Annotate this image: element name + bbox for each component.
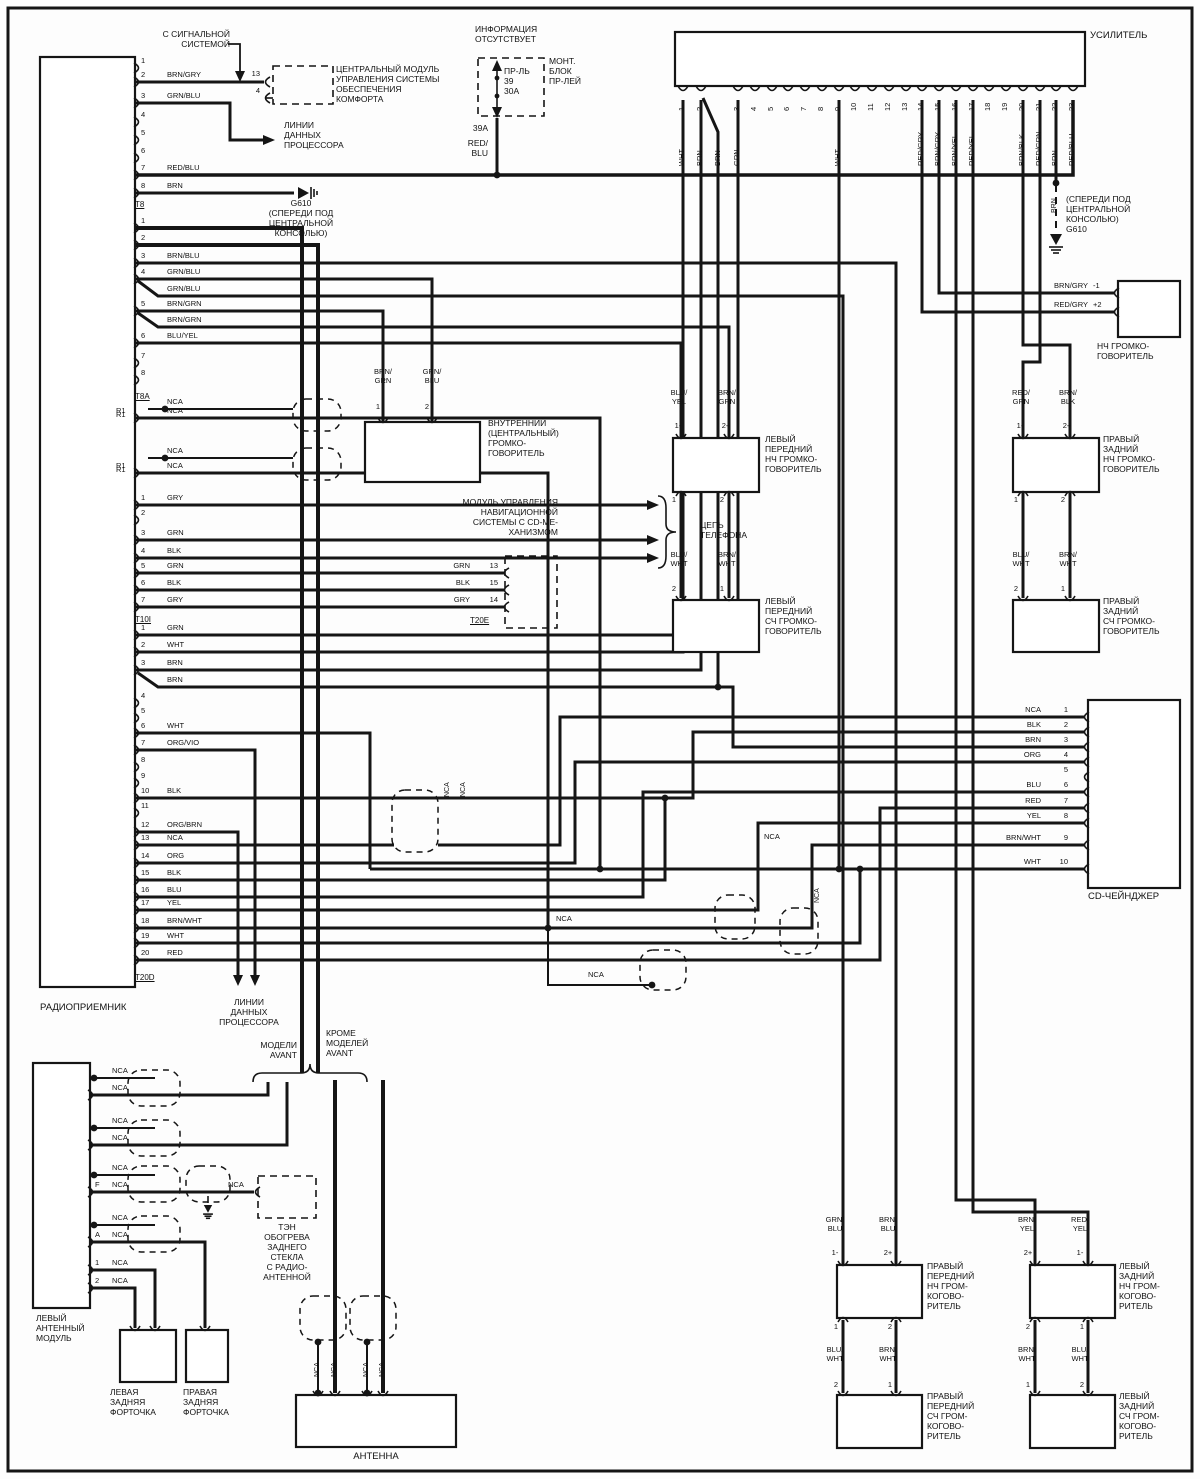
wire-color-label: NCA — [167, 407, 183, 416]
fuse-dot — [495, 94, 500, 99]
connector-tag: T10I — [135, 615, 151, 624]
wire — [135, 808, 1085, 960]
annotation: NCA — [379, 1362, 386, 1377]
annotation: BRN/ BLK — [1051, 389, 1085, 407]
annotation: NCA — [331, 1362, 338, 1377]
center-speaker-box — [365, 422, 480, 482]
pin-number: 11 — [867, 103, 875, 111]
wire-color-label: BRN — [953, 736, 1041, 745]
arrow-icon — [647, 535, 659, 545]
pin-number: 7 — [800, 107, 808, 111]
pin-number: 7 — [141, 164, 145, 173]
annotation: ЛЕВЫЙ ЗАДНИЙ НЧ ГРОМ- КОГОВО- РИТЕЛЬ — [1119, 1261, 1160, 1311]
pin-number: 11 — [141, 802, 149, 811]
wire-color-label: NCA — [112, 1231, 128, 1240]
annotation: GRY — [430, 596, 470, 605]
annotation: АНТЕННА — [316, 1451, 436, 1462]
wire-color-label: BRN/GRN — [167, 300, 202, 309]
annotation: R1 — [116, 466, 126, 475]
wire-color-label: NCA — [167, 462, 183, 471]
annotation: NCA — [228, 1181, 244, 1190]
wire-color-label: BRN/GRY — [167, 71, 201, 80]
pin-number: 1 — [95, 1259, 99, 1268]
wire-color-label: RED/BLU — [167, 164, 200, 173]
wire-color-label: RED/GRN — [1035, 131, 1043, 166]
brace — [253, 1064, 367, 1082]
arrow-icon — [263, 135, 275, 145]
annotation: BLU/ YEL — [662, 389, 696, 407]
annotation: GRN/ BLU — [818, 1216, 852, 1234]
wiring-diagram-page: 12BRN/GRY3GRN/BLU4567RED/BLU8BRN123BRN/B… — [0, 0, 1200, 1479]
lf-mid-box — [673, 600, 759, 652]
wire — [135, 103, 264, 140]
wire — [135, 732, 1085, 798]
pin-number: 1 — [141, 494, 145, 503]
annotation: 13 — [240, 70, 260, 79]
wire-color-label: RED/YEL — [968, 134, 976, 166]
arrow-icon — [492, 60, 502, 71]
wire-color-label: NCA — [112, 1067, 128, 1076]
annotation: NCA — [460, 782, 467, 797]
wire-color-label: WHT — [167, 641, 184, 650]
annotation: RED/ GRN — [1004, 389, 1038, 407]
wire-color-label: BLK — [167, 869, 181, 878]
annotation: BRN/ WHT — [1010, 1346, 1044, 1364]
annotation: ПРАВЫЙ ПЕРЕДНИЙ НЧ ГРОМ- КОГОВО- РИТЕЛЬ — [927, 1261, 974, 1311]
annotation: 39А — [452, 123, 488, 133]
pin-number: 12 — [884, 103, 892, 111]
annotation: BRN/ WHT — [1051, 551, 1085, 569]
annotation: 2+ — [1018, 1249, 1038, 1258]
pin-number: 13 — [901, 103, 909, 111]
wire-color-label: ORG/VIO — [167, 739, 199, 748]
wire-color-label: BLU — [167, 886, 182, 895]
annotation: НЧ ГРОМКО- ГОВОРИТЕЛЬ — [1097, 341, 1154, 361]
wire-color-label: WHT — [167, 932, 184, 941]
wire-color-label: BRN/BLK — [1018, 134, 1026, 166]
antenna-module-box — [33, 1063, 90, 1308]
wire — [135, 418, 600, 869]
ground-icon — [204, 1205, 212, 1213]
annotation: 4 — [240, 87, 260, 96]
annotation: 1 — [1018, 1381, 1038, 1390]
subwoofer-box — [1118, 281, 1180, 337]
defogger-box — [258, 1176, 316, 1218]
arrow-icon — [647, 553, 659, 563]
annotation: BRN/ YEL — [1010, 1216, 1044, 1234]
annotation: 1 — [368, 403, 388, 412]
wire-color-label: GRN/BLU — [167, 92, 200, 101]
annotation: 2+ — [878, 1249, 898, 1258]
junction-dot — [649, 982, 656, 989]
pin-number: 14 — [141, 852, 149, 861]
wire — [135, 832, 238, 976]
pin-number: 8 — [141, 756, 145, 765]
annotation: 2 — [1018, 1323, 1038, 1332]
annotation: BLU/ WHT — [818, 1346, 852, 1364]
arrow-icon — [647, 500, 659, 510]
wire-color-label: BRN — [167, 676, 183, 685]
annotation: 2 — [712, 496, 732, 505]
pin-number: 21 — [1035, 103, 1043, 111]
connector-arc — [266, 77, 271, 87]
shield-symbol — [715, 895, 755, 939]
connector-tag: T8 — [135, 200, 144, 209]
wire-color-label: BRN/GRN — [167, 316, 202, 325]
wire-color-label: BRN — [714, 150, 722, 166]
wire-color-label: NCA — [112, 1259, 128, 1268]
wire-color-label: NCA — [167, 447, 183, 456]
junction-dot — [1053, 180, 1060, 187]
pin-number: 9 — [141, 772, 145, 781]
annotation: 14 — [478, 596, 498, 605]
annotation: ЛИНИИ ДАННЫХ ПРОЦЕССОРА — [284, 120, 344, 150]
annotation: 1- — [1070, 1249, 1090, 1258]
annotation: ЛЕВЫЙ АНТЕННЫЙ МОДУЛЬ — [36, 1313, 85, 1343]
annotation: УСИЛИТЕЛЬ — [1090, 30, 1147, 41]
wire-color-label: BRN/GRY — [934, 132, 942, 166]
wire-color-label: YEL — [953, 812, 1041, 821]
pin-number: 6 — [783, 107, 791, 111]
annotation: NCA — [814, 888, 821, 903]
pin-number: 4 — [141, 111, 145, 120]
wire — [135, 845, 1085, 928]
wire-color-label: NCA — [112, 1214, 128, 1223]
wire-color-label: ORG — [953, 751, 1041, 760]
annotation: ЛЕВАЯ ЗАДНЯЯ ФОРТОЧКА — [110, 1387, 156, 1417]
annotation: 1- — [668, 422, 688, 431]
connector-tag: T20D — [135, 973, 155, 982]
annotation: ПРАВЫЙ ЗАДНИЙ НЧ ГРОМКО- ГОВОРИТЕЛЬ — [1103, 434, 1160, 474]
pin-number: 23 — [1068, 103, 1076, 111]
annotation: МОДУЛЬ УПРАВЛЕНИЯ НАВИГАЦИОННОЙ СИСТЕМЫ … — [420, 497, 558, 537]
junction-dot — [315, 1390, 322, 1397]
annotation: 15 — [478, 579, 498, 588]
pin-number: 19 — [141, 932, 149, 941]
lf-woofer-box — [673, 438, 759, 492]
pin-number: 2 — [141, 509, 145, 518]
annotation: NCA — [764, 833, 780, 842]
wire-color-label: NCA — [112, 1277, 128, 1286]
wire-color-label: ORG/BRN — [167, 821, 202, 830]
annotation: 2 — [826, 1381, 846, 1390]
wire-color-label: BRN/YEL — [951, 134, 959, 166]
annotation: 1 — [1053, 585, 1073, 594]
pin-number: 17 — [968, 103, 976, 111]
annotation: BRN/ GRN — [710, 389, 744, 407]
connector-tag: T20E — [470, 616, 489, 625]
junction-dot — [91, 1172, 98, 1179]
annotation: BRN/ WHT — [710, 551, 744, 569]
junction-dot — [545, 925, 552, 932]
amplifier-box — [675, 32, 1085, 86]
pin-number: 8 — [141, 182, 145, 191]
pin-number: 16 — [951, 103, 959, 111]
pin-number: 5 — [141, 562, 145, 571]
annotation: RED/GRY — [1040, 301, 1088, 310]
wire-color-label: GRN — [167, 562, 184, 571]
annotation: 1 — [1072, 1323, 1092, 1332]
pin-number: 4 — [750, 107, 758, 111]
pin-number: 16 — [141, 886, 149, 895]
pin-number: 3 — [141, 529, 145, 538]
annotation: BRN/ GRN — [366, 368, 400, 386]
pin-number: 5 — [767, 107, 775, 111]
annotation: 1 — [1006, 496, 1026, 505]
junction-dot — [494, 172, 501, 179]
pin-number: 8 — [141, 369, 145, 378]
wire-color-label: BLK — [167, 579, 181, 588]
annotation: ЛИНИИ ДАННЫХ ПРОЦЕССОРА — [203, 997, 295, 1027]
annotation: 1- — [1010, 422, 1030, 431]
annotation: BLK — [430, 579, 470, 588]
pin-number: 10 — [1046, 858, 1068, 867]
wire-color-label: NCA — [112, 1134, 128, 1143]
pin-number: 5 — [141, 707, 145, 716]
wire — [135, 245, 318, 1073]
wire-color-label: WHT — [953, 858, 1041, 867]
wire-color-label: NCA — [112, 1164, 128, 1173]
pin-number: 9 — [834, 107, 842, 111]
junction-dot — [91, 1125, 98, 1132]
rf-mid-box — [837, 1395, 922, 1448]
connector-tag: T8A — [135, 392, 150, 401]
annotation: ТЭН ОБОГРЕВА ЗАДНЕГО СТЕКЛА С РАДИО- АНТ… — [240, 1222, 334, 1282]
comfort-module-box — [273, 66, 333, 104]
pin-number: 20 — [141, 949, 149, 958]
annotation: 13 — [478, 562, 498, 571]
junction-dot — [662, 795, 669, 802]
pin-number: 14 — [917, 103, 925, 111]
fuse-dot — [495, 76, 500, 81]
wire-color-label: NCA — [167, 834, 183, 843]
wire-color-label: YEL — [167, 899, 181, 908]
annotation: ИНФОРМАЦИЯ ОТСУТСТВУЕТ — [475, 24, 537, 44]
annotation: 2 — [1053, 496, 1073, 505]
wire-color-label: BLK — [167, 787, 181, 796]
pin-number: 4 — [141, 547, 145, 556]
annotation: ЛЕВЫЙ ЗАДНИЙ СЧ ГРОМ- КОГОВО- РИТЕЛЬ — [1119, 1391, 1160, 1441]
annotation: 1 — [826, 1323, 846, 1332]
annotation: МОДЕЛИ AVANT — [225, 1040, 297, 1060]
wire-color-label: WHT — [678, 149, 686, 166]
rr-mid-box — [1013, 600, 1099, 652]
wire-color-label: BRN — [167, 659, 183, 668]
annotation: 2+ — [1057, 422, 1077, 431]
annotation: -1 — [1093, 282, 1100, 291]
wire — [90, 1288, 135, 1328]
annotation: 1- — [825, 1249, 845, 1258]
wire-color-label: BRN — [1051, 150, 1059, 166]
annotation: ЦЕПЬ ТЕЛЕФОНА — [700, 520, 747, 540]
annotation: (СПЕРЕДИ ПОД ЦЕНТРАЛЬНОЙ КОНСОЛЬЮ) G610 — [1066, 194, 1131, 234]
pin-number: 3 — [1046, 736, 1068, 745]
wire-color-label: ORG — [167, 852, 184, 861]
cd-changer-box — [1088, 700, 1180, 888]
pin-number: 7 — [1046, 797, 1068, 806]
lr-mid-box — [1030, 1395, 1115, 1448]
annotation: 2 — [664, 585, 684, 594]
pin-number: 3 — [733, 107, 741, 111]
annotation: R1 — [116, 411, 126, 420]
arrow-icon — [250, 975, 260, 986]
junction-dot — [364, 1339, 371, 1346]
radio-box — [40, 57, 135, 987]
wire-color-label: NCA — [953, 706, 1041, 715]
annotation: GRN/ BLU — [415, 368, 449, 386]
wire — [135, 263, 896, 1265]
wire-color-label: BRN — [167, 182, 183, 191]
wire-color-label: WHT — [167, 722, 184, 731]
annotation: РАДИОПРИЕМНИК — [40, 1002, 126, 1013]
annotation: NCA — [556, 915, 572, 924]
pin-number: 10 — [850, 103, 858, 111]
pin-number: 10 — [141, 787, 149, 796]
annotation: 2 — [417, 403, 437, 412]
wire-color-label: GRN/BLU — [167, 268, 200, 277]
annotation: BRN — [1051, 198, 1058, 213]
pin-number: 12 — [141, 821, 149, 830]
wire-color-label: GRY — [167, 596, 183, 605]
pin-number: 7 — [141, 739, 145, 748]
annotation: BLU/ WHT — [662, 551, 696, 569]
junction-dot — [836, 866, 843, 873]
pin-number: 2 — [141, 71, 145, 80]
annotation: NCA — [363, 1362, 370, 1377]
shield-symbol — [300, 1296, 346, 1340]
annotation: ЛЕВЫЙ ПЕРЕДНИЙ НЧ ГРОМКО- ГОВОРИТЕЛЬ — [765, 434, 822, 474]
pin-number: 2 — [95, 1277, 99, 1286]
pin-number: 2 — [1046, 721, 1068, 730]
annotation: 1 — [664, 496, 684, 505]
annotation: NCA — [444, 782, 451, 797]
wire-color-label: BLK — [167, 547, 181, 556]
shield-symbol — [350, 1296, 396, 1340]
annotation: 2+ — [716, 422, 736, 431]
wire-color-label: GRN — [733, 149, 741, 166]
wire-color-label: BLU/YEL — [167, 332, 198, 341]
wire-color-label: WHT — [834, 149, 842, 166]
annotation: CD-ЧЕЙНДЖЕР — [1088, 891, 1159, 902]
annotation: BRN/ WHT — [871, 1346, 905, 1364]
wire-color-label: RED/GRY — [917, 132, 925, 166]
pin-number: 1 — [141, 624, 145, 633]
annotation: RED/ BLU — [452, 138, 488, 158]
antenna-box — [296, 1395, 456, 1447]
wire-color-label: GRY — [167, 494, 183, 503]
wire — [138, 673, 1085, 747]
annotation: +2 — [1093, 301, 1102, 310]
pin-number: 6 — [141, 722, 145, 731]
wire-color-label: RED — [953, 797, 1041, 806]
pin-number: 6 — [141, 147, 145, 156]
annotation: С СИГНАЛЬНОЙ СИСТЕМОЙ — [118, 29, 230, 49]
pin-number: 1 — [1046, 706, 1068, 715]
annotation: ВНУТРЕННИЙ (ЦЕНТРАЛЬНЫЙ) ГРОМКО- ГОВОРИТ… — [488, 418, 559, 458]
wire-color-label: NCA — [112, 1084, 128, 1093]
wire-color-label: GRN — [167, 624, 184, 633]
wire — [90, 1242, 205, 1328]
annotation: ПРАВЫЙ ПЕРЕДНИЙ СЧ ГРОМ- КОГОВО- РИТЕЛЬ — [927, 1391, 974, 1441]
annotation: 2 — [1006, 585, 1026, 594]
pin-number: 1 — [678, 107, 686, 111]
pin-number: 5 — [141, 300, 145, 309]
wire — [135, 762, 1085, 863]
pin-number: 2 — [141, 234, 145, 243]
wire-color-label: RED/BLU — [1068, 133, 1076, 166]
annotation: NCA — [588, 971, 604, 980]
pin-number: 5 — [141, 129, 145, 138]
pin-number: 17 — [141, 899, 149, 908]
wire-color-label: GRN/BLU — [167, 285, 200, 294]
pin-number: 20 — [1018, 103, 1026, 111]
wire-color-label: NCA — [112, 1117, 128, 1126]
annotation: КРОМЕ МОДЕЛЕЙ AVANT — [326, 1028, 368, 1058]
wire-color-label: BRN/BLU — [167, 252, 200, 261]
ground-icon — [1050, 234, 1062, 245]
pin-number: A — [95, 1231, 100, 1240]
annotation: BRN/GRY — [1040, 282, 1088, 291]
annotation: BRN/ BLU — [871, 1216, 905, 1234]
shield-symbol — [128, 1166, 180, 1202]
annotation: G610 (СПЕРЕДИ ПОД ЦЕНТРАЛЬНОЙ КОНСОЛЬЮ) — [248, 198, 354, 238]
wire-color-label: BRN/WHT — [953, 834, 1041, 843]
annotation: RED/ YEL — [1063, 1216, 1097, 1234]
wire-color-label: BRN/WHT — [167, 917, 202, 926]
pin-number: 6 — [141, 332, 145, 341]
pin-number: 9 — [1046, 834, 1068, 843]
shield-symbol — [128, 1216, 180, 1252]
pin-number: 4 — [141, 692, 145, 701]
annotation: BLU/ WHT — [1063, 1346, 1097, 1364]
annotation: ПРАВЫЙ ЗАДНИЙ СЧ ГРОМКО- ГОВОРИТЕЛЬ — [1103, 596, 1160, 636]
pin-number: 3 — [141, 252, 145, 261]
rr-woofer-box — [1013, 438, 1099, 492]
junction-dot — [315, 1339, 322, 1346]
wire-color-label: BLU — [953, 781, 1041, 790]
pin-number: 8 — [1046, 812, 1068, 821]
wire-color-label: NCA — [112, 1181, 128, 1190]
wire-color-label: RED — [167, 949, 183, 958]
pin-number: 5 — [1046, 766, 1068, 775]
pin-number: 3 — [141, 92, 145, 101]
pin-number: 2 — [696, 107, 704, 111]
pin-number: 13 — [141, 834, 149, 843]
pin-number: 3 — [141, 659, 145, 668]
pin-number: 7 — [141, 596, 145, 605]
annotation: 2 — [880, 1323, 900, 1332]
pin-number: 2 — [141, 641, 145, 650]
shield-symbol — [128, 1070, 180, 1106]
annotation: ЦЕНТРАЛЬНЫЙ МОДУЛЬ УПРАВЛЕНИЯ СИСТЕМЫ ОБ… — [336, 64, 439, 104]
wire-color-label: BLK — [953, 721, 1041, 730]
annotation: МОНТ. БЛОК ПР-ЛЕЙ — [549, 56, 581, 86]
wire — [135, 733, 370, 869]
shield-symbol — [128, 1120, 180, 1156]
wire-color-label: GRN — [167, 529, 184, 538]
annotation: BLU/ WHT — [1004, 551, 1038, 569]
pin-number: 18 — [984, 103, 992, 111]
junction-dot — [857, 866, 864, 873]
pin-number: 15 — [141, 869, 149, 878]
pin-number: F — [95, 1181, 100, 1190]
rf-woofer-box — [837, 1265, 922, 1318]
arrow-icon — [233, 975, 243, 986]
pin-number: 22 — [1051, 103, 1059, 111]
right-window-box — [186, 1330, 228, 1382]
pin-number: 4 — [1046, 751, 1068, 760]
annotation: 2 — [1072, 1381, 1092, 1390]
